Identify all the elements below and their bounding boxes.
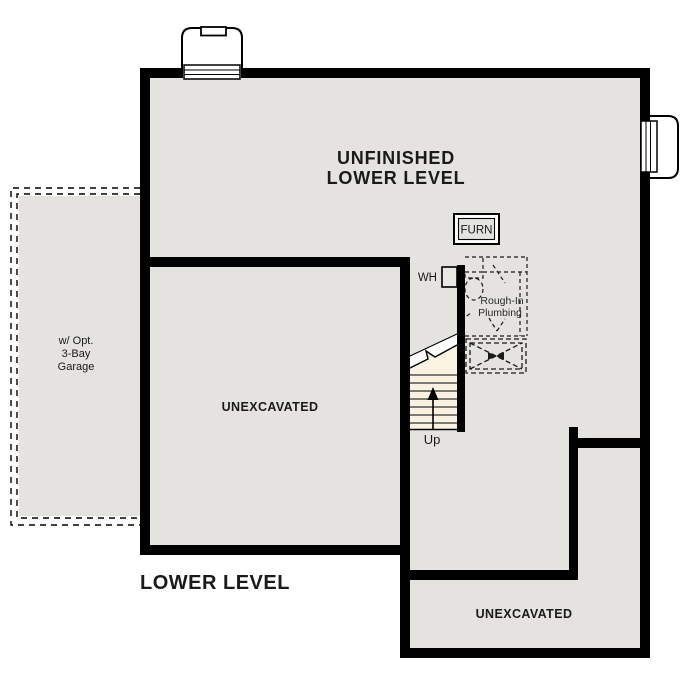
main-room-label-line2: LOWER LEVEL: [327, 168, 466, 188]
plan-title: LOWER LEVEL: [140, 572, 290, 594]
exterior-wall-left: [140, 68, 150, 555]
window-unit: [184, 65, 240, 79]
floor-plan: Up Rough-In Plumbing: [0, 0, 687, 687]
middle-room-label: UNEXCAVATED: [222, 400, 319, 414]
bottom-room-wall-left: [569, 427, 578, 580]
egress-window-right: [641, 116, 678, 178]
bottom-room-label: UNEXCAVATED: [476, 607, 573, 621]
plumbing-label-line1: Rough-In: [480, 295, 523, 307]
main-room-label-line1: UNFINISHED: [337, 148, 455, 168]
garage-label-line3: Garage: [58, 361, 95, 373]
water-heater-label: WH: [418, 272, 437, 284]
unexcavated-wall-top: [140, 257, 410, 267]
stair-wall: [457, 265, 465, 432]
floor-plan-page: Up Rough-In Plumbing: [0, 0, 687, 687]
window-unit: [641, 121, 657, 172]
unexcavated-wall-right: [400, 257, 410, 658]
bottom-room-wall-top: [578, 438, 650, 448]
furnace-box: FURN: [454, 214, 499, 244]
corridor-wall-bottom: [410, 570, 578, 580]
exterior-wall-top: [240, 68, 650, 78]
garage-label-line1: w/ Opt.: [58, 335, 94, 347]
unexcavated-wall-bottom: [140, 545, 410, 555]
stairs-up-label: Up: [424, 432, 441, 447]
exterior-wall-bottom: [400, 648, 650, 658]
furnace-label: FURN: [461, 225, 493, 237]
egress-window-top: [182, 27, 242, 79]
window-well-step: [201, 27, 226, 36]
garage-label-line2: 3-Bay: [62, 348, 91, 360]
plumbing-label-line2: Plumbing: [478, 307, 522, 319]
